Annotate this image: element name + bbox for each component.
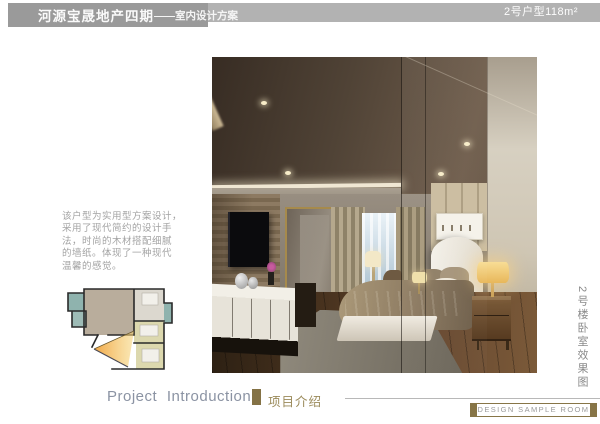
footer-chinese-title: 项目介绍	[268, 391, 322, 410]
description-line: 法，时尚的木材搭配细腻	[62, 236, 186, 248]
ceiling-spotlight	[285, 171, 291, 175]
description-line: 的墙纸。体现了一种现代	[62, 248, 186, 260]
description-line: 采用了现代简约的设计手	[62, 223, 186, 235]
plan-right-bath	[164, 303, 172, 323]
bedroom-rendering-photo	[212, 57, 537, 373]
design-description: 该户型为实用型方案设计， 采用了现代简约的设计手 法，时尚的木材搭配细腻 的墙纸…	[62, 211, 186, 273]
badge-end-block	[590, 404, 596, 416]
photo-caption-vertical: 2号楼卧室效果图	[574, 286, 590, 390]
description-line: 温馨的感觉。	[62, 261, 186, 273]
sideboard-cabinet	[212, 284, 298, 356]
sideboard-seams	[214, 297, 297, 341]
floor-plan	[64, 286, 174, 376]
description-line: 该户型为实用型方案设计，	[62, 211, 186, 223]
design-sample-room-badge: DESIGN SAMPLE ROOM	[470, 403, 597, 417]
dark-cabinet	[295, 283, 316, 327]
bedside-lamp-stem	[491, 283, 495, 297]
flower-vase	[268, 272, 274, 285]
plan-balcony	[68, 293, 84, 311]
footer-divider-bar	[252, 389, 261, 405]
presentation-slide: 河源宝晟地产四期——室内设计方案 2号户型118m² 该户型为实用型方案设计， …	[0, 0, 600, 424]
silver-vase	[235, 273, 248, 289]
page-subtitle: ——室内设计方案	[154, 8, 238, 23]
wall-tv	[228, 212, 269, 267]
unit-type-label: 2号户型118m²	[504, 3, 578, 22]
glass-partition	[401, 57, 487, 373]
silver-vase	[248, 277, 258, 290]
plan-living-room	[84, 289, 134, 335]
glass-seam	[425, 57, 426, 373]
page-title: 河源宝晟地产四期	[38, 5, 154, 25]
plan-view-cone	[94, 331, 134, 367]
footer-english-title: Project Introduction	[107, 388, 251, 405]
footer-rule-line	[345, 398, 600, 399]
window-lamp	[365, 251, 381, 267]
nightstand-leg	[506, 341, 509, 349]
badge-label: DESIGN SAMPLE ROOM	[477, 404, 590, 416]
mirror-highlight	[300, 215, 329, 291]
glass-seam	[401, 57, 402, 373]
flower-decor	[267, 262, 275, 271]
header-title-block: 河源宝晟地产四期——室内设计方案	[8, 3, 208, 27]
